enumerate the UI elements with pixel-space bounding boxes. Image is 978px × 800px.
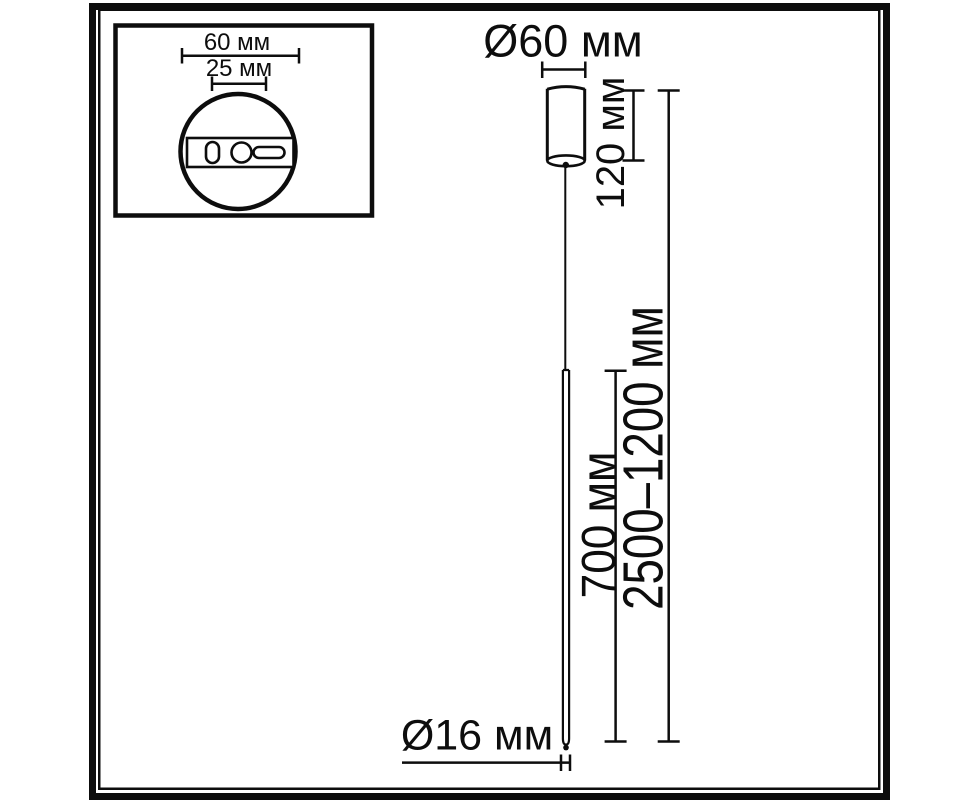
label-hole-spacing: 25 мм	[206, 57, 272, 81]
label-canopy-diameter: Ø60 мм	[483, 19, 642, 64]
tube-tip-dot	[563, 745, 569, 751]
label-canopy-height: 120 мм	[591, 77, 631, 210]
inner-frame	[99, 10, 879, 789]
label-tube-diameter: Ø16 мм	[401, 715, 553, 758]
label-tube-length: 700 мм	[576, 452, 624, 599]
label-plate-width: 60 мм	[204, 31, 270, 55]
drawing-linework	[0, 0, 978, 800]
technical-drawing: 60 мм 25 мм Ø60 мм 120 мм 2500–1200 мм 7…	[0, 0, 978, 800]
outer-frame	[93, 7, 887, 797]
lamp-tube	[563, 370, 569, 745]
ceiling-canopy	[547, 87, 584, 161]
